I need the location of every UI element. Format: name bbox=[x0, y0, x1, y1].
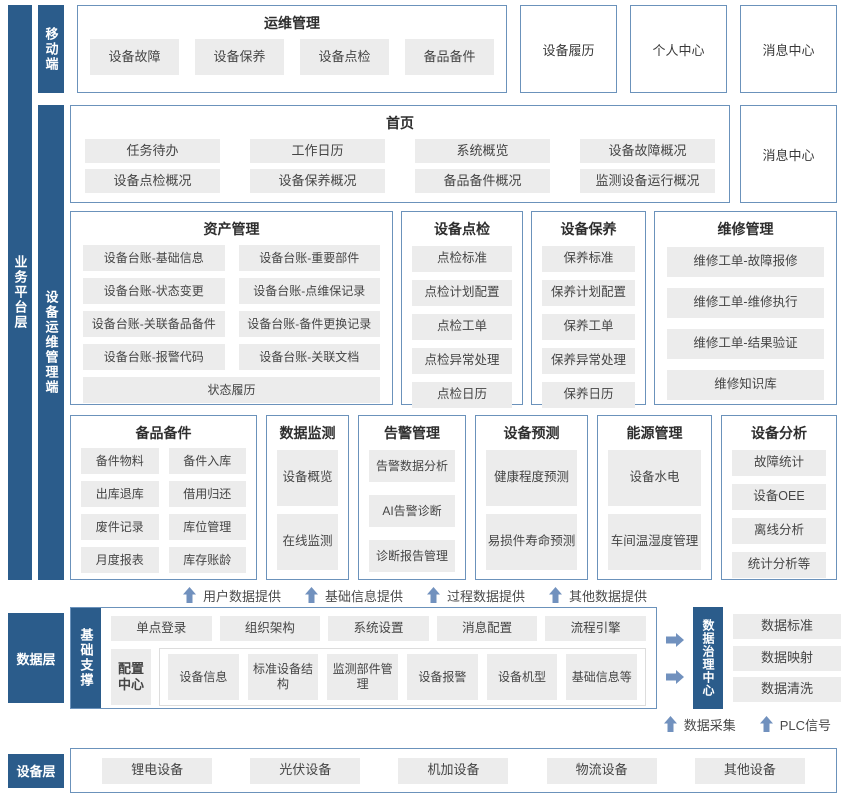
menu-item: 设备台账-报警代码 bbox=[83, 344, 225, 370]
menu-item: 消息配置 bbox=[437, 616, 538, 641]
menu-item: 维修知识库 bbox=[667, 370, 824, 400]
menu-item: 保养计划配置 bbox=[542, 280, 635, 306]
menu-item: 诊断报告管理 bbox=[369, 540, 455, 572]
menu-item: 工作日历 bbox=[250, 139, 385, 163]
config-center-items: 设备信息 标准设备结构 监测部件管理 设备报警 设备机型 基础信息等 bbox=[159, 648, 646, 706]
menu-item: 监测部件管理 bbox=[327, 654, 398, 700]
section-inspection: 设备点检 点检标准 点检计划配置 点检工单 点检异常处理 点检日历 bbox=[401, 211, 523, 405]
alarm-items: 告警数据分析 AI告警诊断 诊断报告管理 bbox=[359, 443, 465, 581]
arrow-up-icon bbox=[549, 587, 562, 603]
menu-item: 设备台账-重要部件 bbox=[239, 245, 381, 271]
card-device-history: 设备履历 bbox=[520, 5, 617, 93]
arrow-up-icon bbox=[760, 716, 773, 732]
layer-label-base-support: 基础支撑 bbox=[71, 608, 101, 708]
menu-item: 备品备件 bbox=[405, 39, 494, 75]
governance-input-arrows: 数据采集 PLC信号 bbox=[8, 712, 837, 736]
menu-item: 点检异常处理 bbox=[412, 348, 512, 374]
menu-item: 车间温湿度管理 bbox=[608, 514, 701, 570]
architecture-diagram: 业务平台层 移动端 运维管理 设备故障 设备保养 设备点检 备品备件 设备履历 … bbox=[0, 0, 841, 794]
section-title: 告警管理 bbox=[359, 416, 465, 443]
input-label: PLC信号 bbox=[780, 715, 831, 734]
menu-item: 易损件寿命预测 bbox=[486, 514, 577, 570]
asset-items: 设备台账-基础信息 设备台账-重要部件 设备台账-状态变更 设备台账-点维保记录… bbox=[71, 239, 392, 411]
flow-item: 基础信息提供 bbox=[305, 586, 413, 605]
menu-item: 告警数据分析 bbox=[369, 450, 455, 482]
flow-item: 其他数据提供 bbox=[549, 586, 657, 605]
flow-label: 基础信息提供 bbox=[325, 586, 403, 605]
arrow-up-icon bbox=[183, 587, 196, 603]
layer-label-business-platform: 业务平台层 bbox=[8, 5, 32, 580]
menu-item: 系统概览 bbox=[415, 139, 550, 163]
section-ops-management: 运维管理 设备故障 设备保养 设备点检 备品备件 bbox=[77, 5, 507, 93]
menu-item: 点检标准 bbox=[412, 246, 512, 272]
spare-parts-items: 备件物料 备件入库 出库退库 借用归还 废件记录 库位管理 月度报表 库存账龄 bbox=[71, 443, 256, 581]
menu-item: 设备报警 bbox=[407, 654, 478, 700]
section-title: 设备保养 bbox=[532, 212, 645, 239]
analysis-items: 故障统计 设备OEE 离线分析 统计分析等 bbox=[722, 443, 836, 587]
device-item: 物流设备 bbox=[547, 758, 657, 784]
menu-item: 设备台账-关联备品备件 bbox=[83, 311, 225, 337]
device-ops-client-rows: 设备运维管理端 首页 任务待办 工作日历 系统概览 设备故障概况 设备点检概况 bbox=[38, 105, 837, 580]
menu-item: 监测设备运行概况 bbox=[580, 169, 715, 193]
device-item: 锂电设备 bbox=[102, 758, 212, 784]
section-title: 设备预测 bbox=[476, 416, 587, 443]
menu-item: 设备台账-状态变更 bbox=[83, 278, 225, 304]
menu-item: 设备点检概况 bbox=[85, 169, 220, 193]
menu-item: 数据清洗 bbox=[733, 677, 841, 702]
inspection-items: 点检标准 点检计划配置 点检工单 点检异常处理 点检日历 bbox=[402, 239, 522, 417]
menu-item: 基础信息等 bbox=[566, 654, 637, 700]
device-layer-section: 设备层 锂电设备 光伏设备 机加设备 物流设备 其他设备 bbox=[8, 748, 837, 793]
maintenance-items: 保养标准 保养计划配置 保养工单 保养异常处理 保养日历 bbox=[532, 239, 645, 417]
device-item: 光伏设备 bbox=[250, 758, 360, 784]
mobile-row: 移动端 运维管理 设备故障 设备保养 设备点检 备品备件 设备履历 个人中心 消… bbox=[38, 5, 837, 93]
flow-label: 其他数据提供 bbox=[569, 586, 647, 605]
menu-item: 流程引擎 bbox=[545, 616, 646, 641]
card-personal-center: 个人中心 bbox=[630, 5, 727, 93]
base-support-content: 单点登录 组织架构 系统设置 消息配置 流程引擎 配置中心 设备信息 标准设备结… bbox=[101, 608, 656, 708]
card-message-center: 消息中心 bbox=[740, 5, 837, 93]
menu-item: 保养日历 bbox=[542, 382, 635, 408]
menu-item: 备品备件概况 bbox=[415, 169, 550, 193]
arrow-up-icon bbox=[664, 716, 677, 732]
section-title: 资产管理 bbox=[71, 212, 392, 239]
device-ops-client-content: 首页 任务待办 工作日历 系统概览 设备故障概况 设备点检概况 设备保养概况 备… bbox=[70, 105, 837, 580]
device-item: 机加设备 bbox=[398, 758, 508, 784]
menu-item: 保养工单 bbox=[542, 314, 635, 340]
menu-item: 设备机型 bbox=[487, 654, 558, 700]
section-title: 设备点检 bbox=[402, 212, 522, 239]
repair-items: 维修工单-故障报修 维修工单-维修执行 维修工单-结果验证 维修知识库 bbox=[655, 239, 836, 410]
menu-item: 设备故障 bbox=[90, 39, 179, 75]
menu-item: 设备台账-点维保记录 bbox=[239, 278, 381, 304]
data-governance-items: 数据标准 数据映射 数据清洗 bbox=[723, 607, 841, 709]
menu-item: 维修工单-维修执行 bbox=[667, 288, 824, 318]
menu-item: 点检工单 bbox=[412, 314, 512, 340]
menu-item: 标准设备结构 bbox=[248, 654, 319, 700]
device-item: 其他设备 bbox=[695, 758, 805, 784]
ops-items: 设备故障 设备保养 设备点检 备品备件 bbox=[78, 33, 506, 75]
menu-item: 保养标准 bbox=[542, 246, 635, 272]
menu-item: 组织架构 bbox=[220, 616, 321, 641]
arrow-right-icon bbox=[666, 670, 684, 684]
business-platform-content: 移动端 运维管理 设备故障 设备保养 设备点检 备品备件 设备履历 个人中心 消… bbox=[38, 5, 837, 580]
menu-item: 离线分析 bbox=[732, 518, 826, 544]
menu-item: 数据映射 bbox=[733, 646, 841, 671]
menu-item: 维修工单-故障报修 bbox=[667, 247, 824, 277]
menu-item: 点检计划配置 bbox=[412, 280, 512, 306]
input-item: PLC信号 bbox=[760, 715, 831, 734]
menu-item: 系统设置 bbox=[328, 616, 429, 641]
home-row: 首页 任务待办 工作日历 系统概览 设备故障概况 设备点检概况 设备保养概况 备… bbox=[70, 105, 837, 203]
section-title: 能源管理 bbox=[598, 416, 711, 443]
menu-item: 出库退库 bbox=[81, 481, 159, 507]
menu-item: 在线监测 bbox=[277, 514, 338, 570]
menu-item: 设备信息 bbox=[168, 654, 239, 700]
arrow-right-icon bbox=[666, 633, 684, 647]
section-spare-parts: 备品备件 备件物料 备件入库 出库退库 借用归还 废件记录 库位管理 月度报表 … bbox=[70, 415, 257, 580]
section-maintenance: 设备保养 保养标准 保养计划配置 保养工单 保养异常处理 保养日历 bbox=[531, 211, 646, 405]
data-monitoring-items: 设备概览 在线监测 bbox=[267, 443, 348, 579]
arrow-up-icon bbox=[305, 587, 318, 603]
config-center-label: 配置中心 bbox=[111, 649, 151, 705]
menu-item: 设备台账-关联文档 bbox=[239, 344, 381, 370]
section-title: 备品备件 bbox=[71, 416, 256, 443]
section-data-monitoring: 数据监测 设备概览 在线监测 bbox=[266, 415, 349, 580]
input-label: 数据采集 bbox=[684, 715, 736, 734]
layer-label-device-ops-client: 设备运维管理端 bbox=[38, 105, 64, 580]
governance-flow-arrows bbox=[663, 607, 687, 709]
menu-item: 故障统计 bbox=[732, 450, 826, 476]
menu-item: 健康程度预测 bbox=[486, 450, 577, 506]
section-base-support: 基础支撑 单点登录 组织架构 系统设置 消息配置 流程引擎 配置中心 设备信息 … bbox=[70, 607, 657, 709]
asset-row: 资产管理 设备台账-基础信息 设备台账-重要部件 设备台账-状态变更 设备台账-… bbox=[70, 211, 837, 405]
menu-item: 维修工单-结果验证 bbox=[667, 329, 824, 359]
menu-item: 月度报表 bbox=[81, 547, 159, 573]
energy-items: 设备水电 车间温湿度管理 bbox=[598, 443, 711, 579]
menu-item: 任务待办 bbox=[85, 139, 220, 163]
section-repair-management: 维修管理 维修工单-故障报修 维修工单-维修执行 维修工单-结果验证 维修知识库 bbox=[654, 211, 837, 405]
analysis-row: 备品备件 备件物料 备件入库 出库退库 借用归还 废件记录 库位管理 月度报表 … bbox=[70, 415, 837, 580]
menu-item: 设备概览 bbox=[277, 450, 338, 506]
home-items: 任务待办 工作日历 系统概览 设备故障概况 设备点检概况 设备保养概况 备品备件… bbox=[71, 133, 729, 201]
section-title: 维修管理 bbox=[655, 212, 836, 239]
menu-item: 设备台账-基础信息 bbox=[83, 245, 225, 271]
menu-item: 单点登录 bbox=[111, 616, 212, 641]
section-energy-management: 能源管理 设备水电 车间温湿度管理 bbox=[597, 415, 712, 580]
menu-item: 设备水电 bbox=[608, 450, 701, 506]
menu-item: 设备保养概况 bbox=[250, 169, 385, 193]
section-title: 首页 bbox=[71, 106, 729, 133]
section-data-governance: 数据治理中心 数据标准 数据映射 数据清洗 bbox=[693, 607, 841, 709]
section-title: 数据监测 bbox=[267, 416, 348, 443]
section-device-prediction: 设备预测 健康程度预测 易损件寿命预测 bbox=[475, 415, 588, 580]
section-title: 设备分析 bbox=[722, 416, 836, 443]
section-title: 运维管理 bbox=[78, 6, 506, 33]
menu-item: AI告警诊断 bbox=[369, 495, 455, 527]
base-support-row1: 单点登录 组织架构 系统设置 消息配置 流程引擎 bbox=[111, 616, 646, 641]
prediction-items: 健康程度预测 易损件寿命预测 bbox=[476, 443, 587, 579]
section-device-analysis: 设备分析 故障统计 设备OEE 离线分析 统计分析等 bbox=[721, 415, 837, 580]
menu-item: 库位管理 bbox=[169, 514, 247, 540]
data-governance-label: 数据治理中心 bbox=[693, 607, 723, 709]
business-platform-section: 业务平台层 移动端 运维管理 设备故障 设备保养 设备点检 备品备件 设备履历 … bbox=[8, 5, 837, 580]
card-message-center-pc: 消息中心 bbox=[740, 105, 837, 203]
data-layer-section: 数据层 基础支撑 单点登录 组织架构 系统设置 消息配置 流程引擎 配置中心 设… bbox=[8, 607, 837, 709]
menu-item: 保养异常处理 bbox=[542, 348, 635, 374]
device-layer-box: 锂电设备 光伏设备 机加设备 物流设备 其他设备 bbox=[70, 748, 837, 793]
base-support-row2: 配置中心 设备信息 标准设备结构 监测部件管理 设备报警 设备机型 基础信息等 bbox=[111, 648, 646, 706]
menu-item: 备件物料 bbox=[81, 448, 159, 474]
menu-item: 设备OEE bbox=[732, 484, 826, 510]
menu-item: 状态履历 bbox=[83, 377, 380, 403]
flow-item: 用户数据提供 bbox=[183, 586, 291, 605]
menu-item: 数据标准 bbox=[733, 614, 841, 639]
flow-item: 过程数据提供 bbox=[427, 586, 535, 605]
layer-label-mobile: 移动端 bbox=[38, 5, 64, 93]
layer-label-device: 设备层 bbox=[8, 754, 64, 788]
menu-item: 备件入库 bbox=[169, 448, 247, 474]
flow-label: 用户数据提供 bbox=[203, 586, 281, 605]
flow-label: 过程数据提供 bbox=[447, 586, 525, 605]
menu-item: 设备点检 bbox=[300, 39, 389, 75]
arrow-up-icon bbox=[427, 587, 440, 603]
section-asset-management: 资产管理 设备台账-基础信息 设备台账-重要部件 设备台账-状态变更 设备台账-… bbox=[70, 211, 393, 405]
menu-item: 借用归还 bbox=[169, 481, 247, 507]
data-flow-arrows: 用户数据提供 基础信息提供 过程数据提供 其他数据提供 bbox=[183, 585, 837, 605]
menu-item: 库存账龄 bbox=[169, 547, 247, 573]
menu-item: 点检日历 bbox=[412, 382, 512, 408]
section-alarm-management: 告警管理 告警数据分析 AI告警诊断 诊断报告管理 bbox=[358, 415, 466, 580]
section-home: 首页 任务待办 工作日历 系统概览 设备故障概况 设备点检概况 设备保养概况 备… bbox=[70, 105, 730, 203]
menu-item: 废件记录 bbox=[81, 514, 159, 540]
menu-item: 设备故障概况 bbox=[580, 139, 715, 163]
layer-label-data: 数据层 bbox=[8, 613, 64, 703]
menu-item: 设备台账-备件更换记录 bbox=[239, 311, 381, 337]
menu-item: 统计分析等 bbox=[732, 552, 826, 578]
menu-item: 设备保养 bbox=[195, 39, 284, 75]
input-item: 数据采集 bbox=[664, 715, 736, 734]
